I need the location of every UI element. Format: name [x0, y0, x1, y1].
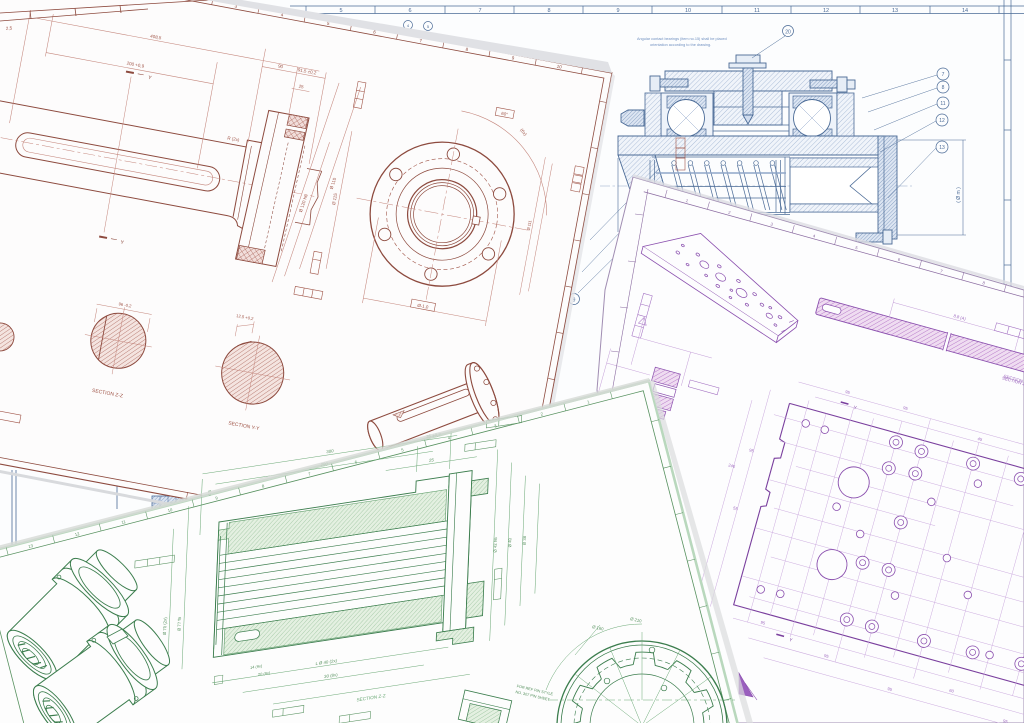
svg-text:13: 13 [939, 145, 945, 151]
svg-text:Ø 77 f9: Ø 77 f9 [176, 616, 182, 631]
svg-text:8: 8 [942, 85, 945, 91]
svg-text:20: 20 [785, 30, 791, 36]
svg-text:7: 7 [478, 8, 481, 14]
svg-text:Angular contact bearings (item: Angular contact bearings (item no.15) sh… [637, 37, 727, 41]
svg-text:25: 25 [429, 457, 435, 463]
svg-text:9: 9 [616, 8, 619, 14]
svg-text:6: 6 [408, 8, 411, 14]
svg-text:2,5: 2,5 [6, 25, 13, 31]
svg-text:11: 11 [940, 101, 945, 107]
svg-text:14: 14 [962, 8, 968, 14]
svg-text:Ø 40: Ø 40 [507, 537, 512, 548]
svg-text:5: 5 [339, 8, 342, 14]
svg-text:Ø 70 (2x): Ø 70 (2x) [162, 616, 168, 635]
svg-text:13: 13 [892, 8, 898, 14]
svg-text:Ø 42 h6: Ø 42 h6 [492, 536, 498, 553]
svg-text:11: 11 [754, 8, 760, 14]
svg-text:12: 12 [939, 118, 945, 124]
svg-text:12: 12 [823, 8, 829, 14]
svg-text:( Ø m ): ( Ø m ) [956, 187, 962, 203]
svg-text:10: 10 [685, 8, 691, 14]
svg-text:8: 8 [547, 8, 550, 14]
svg-text:orientation according to the d: orientation according to the drawing. [650, 43, 711, 47]
svg-text:7: 7 [942, 72, 945, 78]
svg-text:Ø 38: Ø 38 [522, 535, 527, 546]
